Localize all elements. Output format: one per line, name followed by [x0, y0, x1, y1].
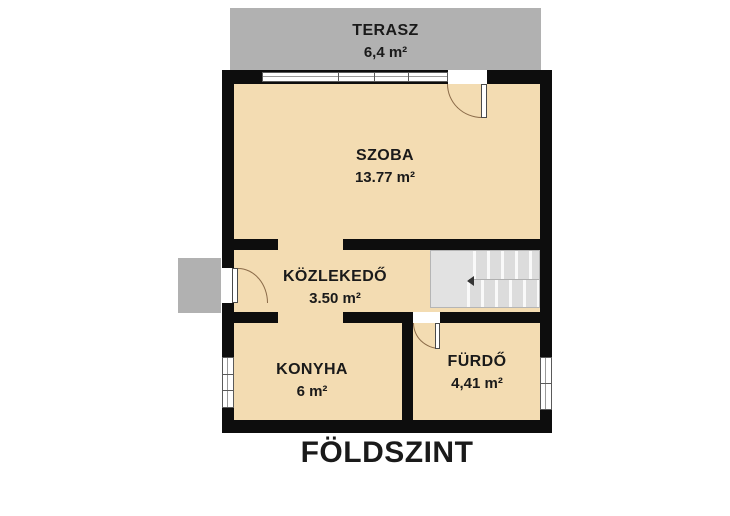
konyha-name: KONYHA: [232, 359, 392, 381]
floorplan-canvas: TERASZ 6,4 m² S: [0, 0, 730, 516]
kozlekedo-label: KÖZLEKEDŐ 3.50 m²: [235, 266, 435, 309]
terrace-door-leaf: [481, 84, 487, 118]
kozlekedo-area: 3.50 m²: [235, 288, 435, 309]
terrace-door-opening: [448, 70, 487, 84]
window-mullion: [408, 72, 409, 82]
terasz-name: TERASZ: [230, 20, 541, 42]
konyha-label: KONYHA 6 m²: [232, 359, 392, 402]
room-terasz: TERASZ 6,4 m²: [230, 8, 541, 72]
szoba-label: SZOBA 13.77 m²: [285, 145, 485, 188]
furdo-label: FÜRDŐ 4,41 m²: [417, 351, 537, 394]
stair-midline: [469, 279, 539, 280]
stair-direction-arrow: [467, 276, 474, 286]
window-mullion: [374, 72, 375, 82]
szoba-area: 13.77 m²: [285, 167, 485, 188]
terasz-area: 6,4 m²: [230, 42, 541, 63]
wall-hall-kitchen-left: [222, 312, 278, 323]
window-mullion: [338, 72, 339, 82]
floor-title: FÖLDSZINT: [222, 436, 552, 470]
wall-hall-bath-right: [440, 312, 552, 323]
kozlekedo-name: KÖZLEKEDŐ: [235, 266, 435, 288]
bathroom-door-opening: [413, 312, 440, 323]
terrace-window-band: [262, 72, 448, 82]
wall-szoba-hall-left: [222, 239, 278, 250]
bathroom-door-leaf: [435, 323, 440, 349]
wall-szoba-hall-right: [343, 239, 552, 250]
window-mullion: [540, 383, 552, 384]
wall-kitchen-bath: [402, 312, 413, 433]
entry-step: [178, 258, 221, 313]
wall-bottom: [222, 420, 552, 433]
konyha-area: 6 m²: [232, 381, 392, 402]
furdo-area: 4,41 m²: [417, 373, 537, 394]
terasz-label: TERASZ 6,4 m²: [230, 20, 541, 63]
szoba-name: SZOBA: [285, 145, 485, 167]
staircase: [430, 250, 540, 308]
furdo-name: FÜRDŐ: [417, 351, 537, 373]
stair-treads-upper: [473, 251, 539, 279]
stair-treads-lower: [467, 280, 539, 307]
